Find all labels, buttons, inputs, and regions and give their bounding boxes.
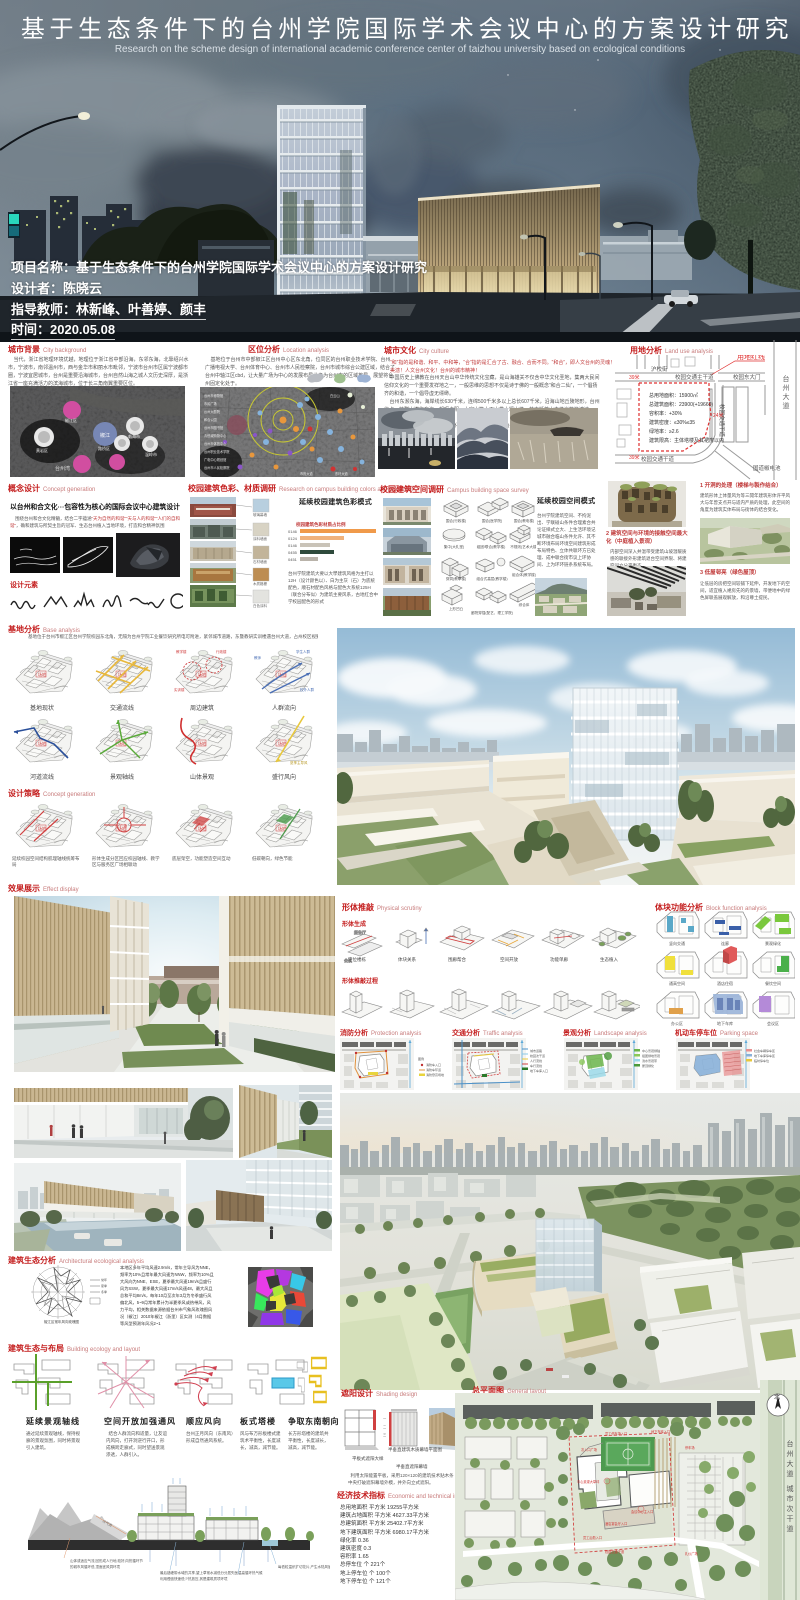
svg-text:上形凹凸: 上形凹凸 xyxy=(449,606,464,611)
svg-text:石材墙面: 石材墙面 xyxy=(253,559,267,564)
svg-text:围合(医学院): 围合(医学院) xyxy=(482,518,502,523)
svg-text:校园东大门: 校园东大门 xyxy=(733,373,761,381)
svg-text:车行流线: 车行流线 xyxy=(530,1063,542,1068)
svg-text:建筑限高：主体塔楼及其裙房以内: 建筑限高：主体塔楼及其裙房以内 xyxy=(649,437,724,444)
svg-text:常年: 常年 xyxy=(101,1277,107,1282)
svg-text:连廊: 连廊 xyxy=(721,940,729,946)
svg-text:地下车库入口: 地下车库入口 xyxy=(651,1429,670,1434)
svg-text:每低粒温织扩切花片,产生水陆风届所留温风风格: 每低粒温织扩切花片,产生水陆风届所留温风风格 xyxy=(278,1564,330,1569)
svg-text:台州湾: 台州湾 xyxy=(55,465,70,472)
svg-text:通高空间: 通高空间 xyxy=(669,980,685,986)
svg-text:台州市人民检察院: 台州市人民检察院 xyxy=(204,465,230,470)
svg-text:校园交通干道: 校园交通干道 xyxy=(718,404,726,438)
svg-text:中心景观大草坪: 中心景观大草坪 xyxy=(577,1479,600,1484)
svg-text:办公区: 办公区 xyxy=(671,1020,683,1026)
svg-text:台州大剧院: 台州大剧院 xyxy=(204,409,221,414)
svg-text:员工后勤入口: 员工后勤入口 xyxy=(583,1535,602,1540)
svg-text:39米: 39米 xyxy=(629,454,640,461)
svg-text:地下车库入口: 地下车库入口 xyxy=(530,1068,548,1073)
svg-text:建筑密度：≤30%≤35: 建筑密度：≤30%≤35 xyxy=(649,419,695,426)
svg-text:教学楼: 教学楼 xyxy=(176,649,187,654)
svg-text:青悦城购物中心: 青悦城购物中心 xyxy=(204,433,227,438)
svg-text:三: 三 xyxy=(383,1433,386,1437)
svg-text:24米: 24米 xyxy=(713,412,724,419)
svg-text:组团/联合(教学楼): 组团/联合(教学楼) xyxy=(477,544,506,549)
svg-text:台州职业技术学院: 台州职业技术学院 xyxy=(204,449,230,454)
svg-text:的城市风循环低,顶面宜风洞环境: 的城市风循环低,顶面宜风洞环境 xyxy=(70,1564,120,1569)
svg-text:椒江区常年风向玫瑰图: 椒江区常年风向玫瑰图 xyxy=(44,1319,79,1324)
svg-text:学生人群: 学生人群 xyxy=(296,649,310,654)
svg-text:员工停车场入口: 员工停车场入口 xyxy=(605,1431,627,1436)
svg-text:廊院穿插(配艺、理工学院): 廊院穿插(配艺、理工学院) xyxy=(471,610,513,615)
svg-text:利用煙囱快速低少热放压,其是建筑质项环境: 利用煙囱快速低少热放压,其是建筑质项环境 xyxy=(160,1576,228,1581)
svg-text:和合公园: 和合公园 xyxy=(204,417,217,422)
svg-text:临海市: 临海市 xyxy=(128,433,140,439)
svg-text:竖向交通: 竖向交通 xyxy=(669,940,685,946)
svg-text:黄岩区: 黄岩区 xyxy=(36,447,48,453)
svg-text:广场: 广场 xyxy=(120,823,127,828)
svg-text:总用地面积：15900㎡: 总用地面积：15900㎡ xyxy=(649,392,698,399)
svg-text:酒店宴会厅入口: 酒店宴会厅入口 xyxy=(605,1521,627,1526)
svg-text:组合体(教学楼): 组合体(教学楼) xyxy=(512,572,536,577)
svg-text:礼仪广场: 礼仪广场 xyxy=(685,1551,698,1556)
svg-text:台州市体育中心: 台州市体育中心 xyxy=(204,441,227,446)
svg-text:椒江: 椒江 xyxy=(100,432,110,439)
svg-text:次入口广场: 次入口广场 xyxy=(581,1447,597,1452)
svg-text:行政楼: 行政楼 xyxy=(216,649,227,654)
svg-text:最后错峰带水域的共享,望上草常水减低分分居失医温高循环热气候: 最后错峰带水域的共享,望上草常水减低分分居失医温高循环热气候 xyxy=(160,1570,263,1575)
svg-text:社会车辆停车区: 社会车辆停车区 xyxy=(754,1048,775,1053)
svg-text:0451: 0451 xyxy=(288,557,298,562)
svg-text:校园交通主干道: 校园交通主干道 xyxy=(675,373,714,381)
svg-text:木质格栅: 木质格栅 xyxy=(253,581,267,586)
svg-text:校园交通干道: 校园交通干道 xyxy=(605,1549,625,1554)
svg-text:人行流线: 人行流线 xyxy=(530,1058,542,1063)
svg-text:校园交通干道: 校园交通干道 xyxy=(641,455,675,463)
svg-text:台州市博物馆: 台州市博物馆 xyxy=(204,393,223,398)
svg-text:餐饮空间: 餐饮空间 xyxy=(765,980,781,986)
svg-text:校外人群: 校外人群 xyxy=(300,687,314,692)
svg-text:教师: 教师 xyxy=(254,655,262,660)
svg-text:酒店住宿: 酒店住宿 xyxy=(717,980,733,986)
svg-text:城市道路: 城市道路 xyxy=(530,1048,542,1053)
svg-text:夏季主导风: 夏季主导风 xyxy=(290,760,308,765)
svg-text:一: 一 xyxy=(383,1417,387,1421)
svg-text:消防登高场地: 消防登高场地 xyxy=(426,1072,444,1077)
svg-text:临时停车位: 临时停车位 xyxy=(754,1058,769,1063)
svg-text:用地红线: 用地红线 xyxy=(737,355,765,361)
svg-text:实训楼: 实训楼 xyxy=(174,687,185,692)
svg-text:综合体: 综合体 xyxy=(519,602,530,607)
svg-text:绿地率：≥2.6: 绿地率：≥2.6 xyxy=(649,428,679,435)
svg-text:39米: 39米 xyxy=(629,374,640,381)
svg-text:停车场: 停车场 xyxy=(685,1445,695,1450)
svg-text:市府大道: 市府大道 xyxy=(300,471,314,476)
svg-text:会议区: 会议区 xyxy=(767,1020,779,1026)
svg-text:图例: 图例 xyxy=(418,1056,424,1061)
svg-text:校园次干道: 校园次干道 xyxy=(530,1053,545,1058)
svg-text:涂料墙面: 涂料墙面 xyxy=(253,536,267,541)
svg-text:山体或适应气流,回形成人行地,较好,向热循环节: 山体或适应气流,回形成人行地,较好,向热循环节 xyxy=(70,1558,143,1563)
svg-text:围合(教电楼): 围合(教电楼) xyxy=(514,518,534,523)
svg-text:白云山: 白云山 xyxy=(330,393,340,398)
svg-text:集中(大礼堂): 集中(大礼堂) xyxy=(444,544,464,549)
svg-text:穿洞(教學楼): 穿洞(教學楼) xyxy=(446,576,466,581)
svg-text:广电中心规划馆: 广电中心规划馆 xyxy=(204,457,226,462)
svg-text:冬季: 冬季 xyxy=(101,1289,107,1294)
svg-text:容积率：+30%: 容积率：+30% xyxy=(649,410,682,417)
svg-text:夏季: 夏季 xyxy=(101,1283,107,1288)
svg-text:温岭市: 温岭市 xyxy=(145,451,157,457)
svg-text:消防车入口: 消防车入口 xyxy=(426,1062,441,1067)
svg-text:东环大道: 东环大道 xyxy=(335,471,349,476)
svg-text:滨水景观带: 滨水景观带 xyxy=(642,1058,657,1063)
svg-text:地下车库: 地下车库 xyxy=(717,1020,733,1026)
svg-text:报告厅: 报告厅 xyxy=(354,929,366,935)
svg-text:市民广场: 市民广场 xyxy=(204,401,217,406)
svg-text:地下车库停车区: 地下车库停车区 xyxy=(754,1053,775,1058)
svg-text:不规则(艺术大楼): 不规则(艺术大楼) xyxy=(510,544,536,549)
svg-text:组团绿地景观: 组团绿地景观 xyxy=(642,1053,660,1058)
svg-text:消防车环道: 消防车环道 xyxy=(426,1067,441,1072)
svg-text:白色涂料: 白色涂料 xyxy=(253,603,267,608)
svg-text:椒江区: 椒江区 xyxy=(65,417,77,423)
svg-text:景观绿化: 景观绿化 xyxy=(765,940,781,946)
svg-text:台州市图书馆: 台州市图书馆 xyxy=(204,425,223,430)
svg-text:0124: 0124 xyxy=(288,536,298,541)
svg-text:0455: 0455 xyxy=(288,550,298,555)
svg-text:组合式高层(教学楼): 组合式高层(教学楼) xyxy=(476,576,507,581)
svg-text:0146: 0146 xyxy=(288,543,298,548)
svg-text:0146: 0146 xyxy=(288,529,298,534)
svg-text:屋顶绿化: 屋顶绿化 xyxy=(642,1063,654,1068)
svg-text:沪校街: 沪校街 xyxy=(651,365,668,373)
svg-text:总建筑面积：23900(+19660): 总建筑面积：23900(+19660) xyxy=(649,401,713,408)
svg-text:玻璃幕墙: 玻璃幕墙 xyxy=(253,512,267,517)
svg-text:围合(行政楼): 围合(行政楼) xyxy=(446,518,466,523)
svg-text:中心景观绿轴: 中心景观绿轴 xyxy=(642,1048,660,1053)
svg-text:会议中心主入口: 会议中心主入口 xyxy=(631,1509,653,1514)
svg-text:路桥区: 路桥区 xyxy=(98,445,110,451)
svg-text:二: 二 xyxy=(383,1425,386,1429)
